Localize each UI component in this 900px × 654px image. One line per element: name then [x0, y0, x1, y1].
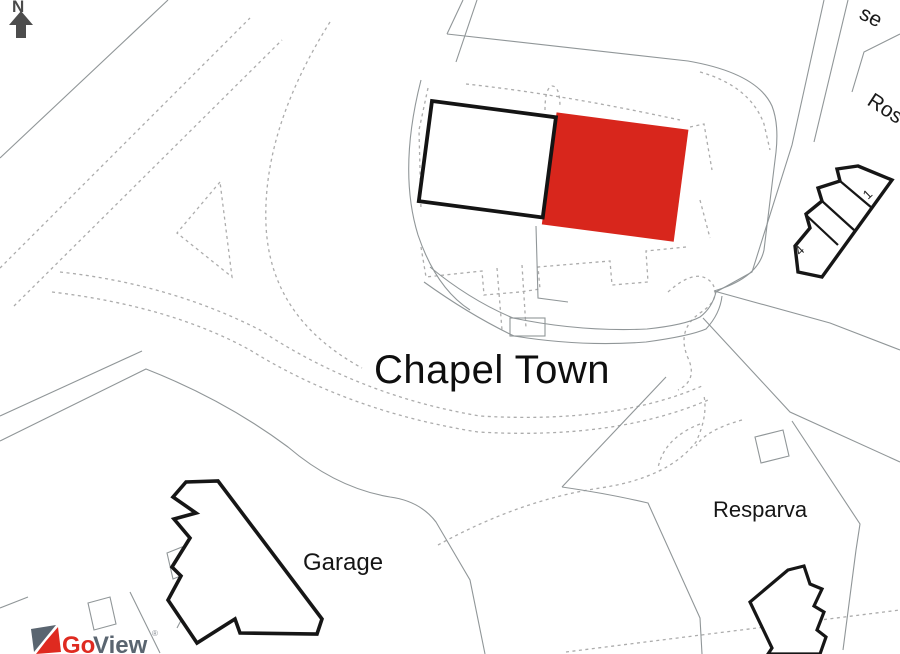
traffic-island-dashed — [177, 182, 232, 277]
resparva-outbuilding — [755, 430, 789, 463]
main-building[interactable] — [418, 96, 689, 242]
main-building-outline — [419, 101, 556, 217]
resparva-building — [750, 566, 826, 654]
garage-building — [168, 481, 322, 643]
street-name-partial-right: Ros — [863, 89, 900, 129]
map-viewport[interactable]: Chapel Town Garage Resparva Ros se 1 4 N… — [0, 0, 900, 654]
map-canvas[interactable]: Chapel Town Garage Resparva Ros se 1 4 N… — [0, 0, 900, 654]
logo-text-view: View — [93, 632, 148, 654]
street-name-partial-top: se — [856, 2, 886, 32]
north-arrow: N — [9, 0, 33, 38]
chapel-town-label: Chapel Town — [374, 348, 610, 392]
resparva-label: Resparva — [713, 497, 808, 522]
terrace-buildings — [795, 166, 892, 277]
parcel-boundary-lines — [0, 0, 900, 654]
garage-label: Garage — [303, 549, 383, 576]
small-outbuilding — [88, 597, 116, 630]
subject-property-highlight[interactable] — [542, 112, 689, 241]
logo-text-go: Go — [62, 632, 95, 654]
map-labels: Chapel Town Garage Resparva Ros se 1 4 — [303, 2, 900, 576]
registered-mark: ® — [152, 629, 158, 638]
